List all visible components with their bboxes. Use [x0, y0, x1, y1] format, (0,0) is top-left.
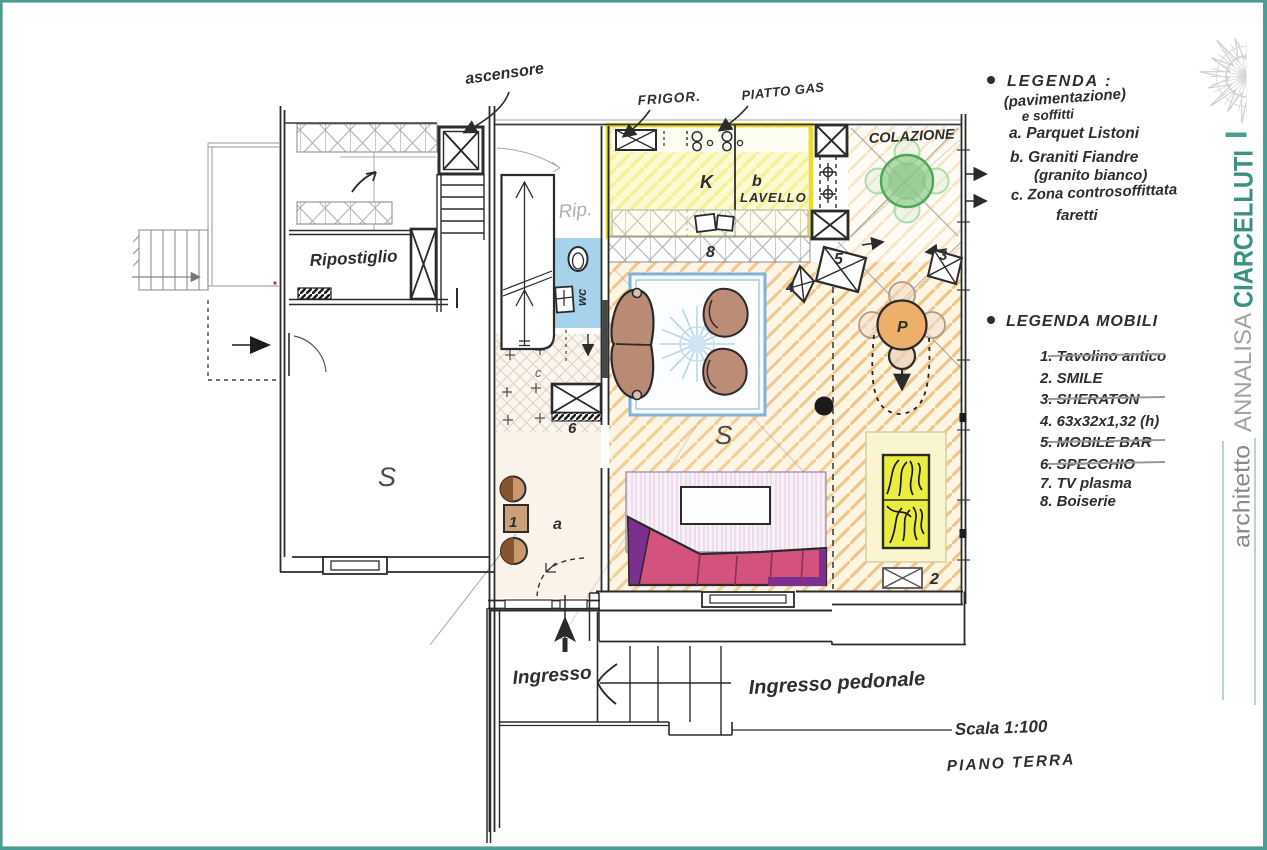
svg-text:3: 3 — [939, 247, 948, 264]
svg-text:S: S — [378, 462, 396, 492]
svg-text:8: 8 — [706, 244, 715, 261]
svg-text:a: a — [553, 516, 562, 533]
svg-text:S: S — [715, 420, 733, 450]
svg-text:CIARCELLUTI: CIARCELLUTI — [1229, 150, 1259, 308]
svg-text:5: 5 — [834, 251, 844, 268]
svg-text:c: c — [535, 365, 542, 380]
svg-text:e soffitti: e soffitti — [1021, 106, 1074, 124]
svg-text:LAVELLO: LAVELLO — [740, 190, 807, 205]
svg-text:K: K — [700, 172, 715, 192]
svg-text:architetto: architetto — [1229, 445, 1255, 548]
svg-text:ANNALISA: ANNALISA — [1230, 313, 1257, 432]
svg-text:Scala 1:100: Scala 1:100 — [954, 717, 1048, 739]
svg-text:faretti: faretti — [1056, 207, 1099, 224]
svg-text:Rip.: Rip. — [558, 199, 593, 223]
svg-text:P: P — [897, 319, 908, 336]
svg-text:4: 4 — [785, 279, 795, 296]
svg-text:(granito bianco): (granito bianco) — [1034, 167, 1147, 184]
svg-text:2: 2 — [929, 571, 939, 588]
svg-text:b: b — [752, 173, 762, 190]
svg-text:2. SMILE: 2. SMILE — [1039, 370, 1104, 387]
svg-text:4. 63x32x1,32 (h): 4. 63x32x1,32 (h) — [1039, 413, 1159, 430]
svg-text:7. TV plasma: 7. TV plasma — [1040, 475, 1132, 492]
svg-text:8. Boiserie: 8. Boiserie — [1040, 493, 1116, 510]
svg-text:6: 6 — [568, 420, 577, 437]
svg-text:b. Graniti Fiandre: b. Graniti Fiandre — [1010, 149, 1139, 166]
svg-text:LEGENDA MOBILI: LEGENDA MOBILI — [1006, 313, 1158, 330]
svg-text:wc: wc — [574, 288, 589, 306]
svg-text:1: 1 — [509, 514, 517, 531]
svg-text:a. Parquet Listoni: a. Parquet Listoni — [1009, 125, 1140, 142]
